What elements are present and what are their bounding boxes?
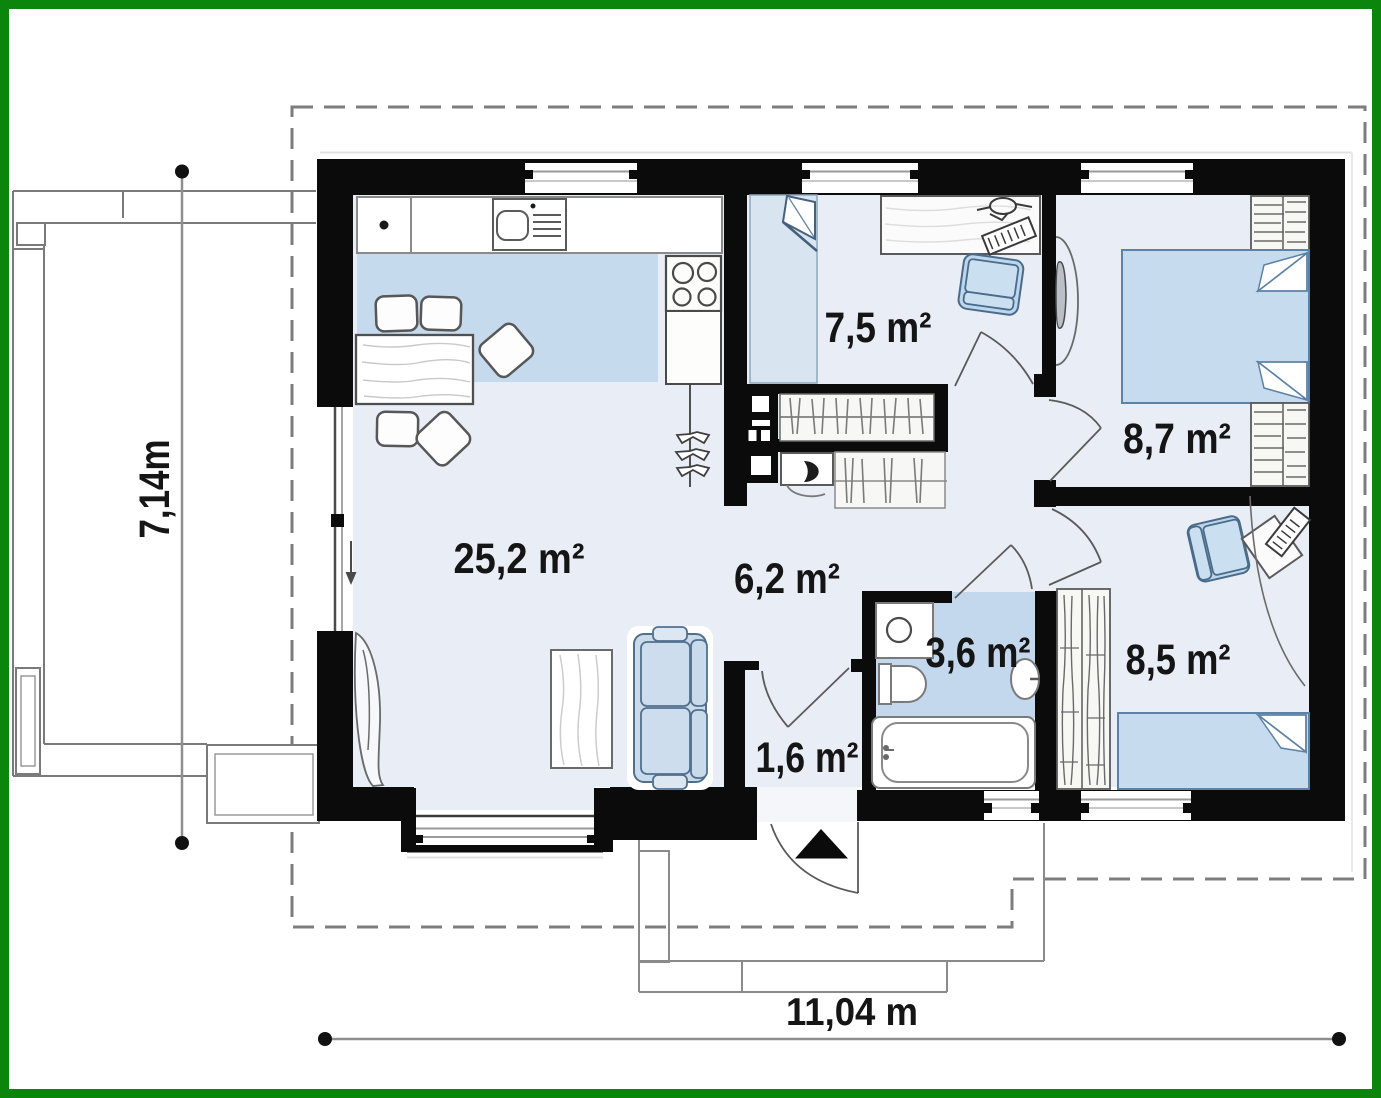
svg-text:8,5 m²: 8,5 m² (1126, 636, 1231, 684)
svg-text:25,2 m²: 25,2 m² (454, 535, 585, 583)
svg-text:7,14m: 7,14m (131, 440, 179, 539)
svg-text:3,6 m²: 3,6 m² (926, 629, 1031, 677)
svg-text:1,6 m²: 1,6 m² (756, 734, 859, 782)
svg-text:8,7 m²: 8,7 m² (1123, 415, 1231, 463)
svg-text:7,5 m²: 7,5 m² (825, 304, 932, 352)
svg-text:6,2 m²: 6,2 m² (734, 555, 840, 603)
svg-text:11,04 m: 11,04 m (786, 991, 918, 1034)
